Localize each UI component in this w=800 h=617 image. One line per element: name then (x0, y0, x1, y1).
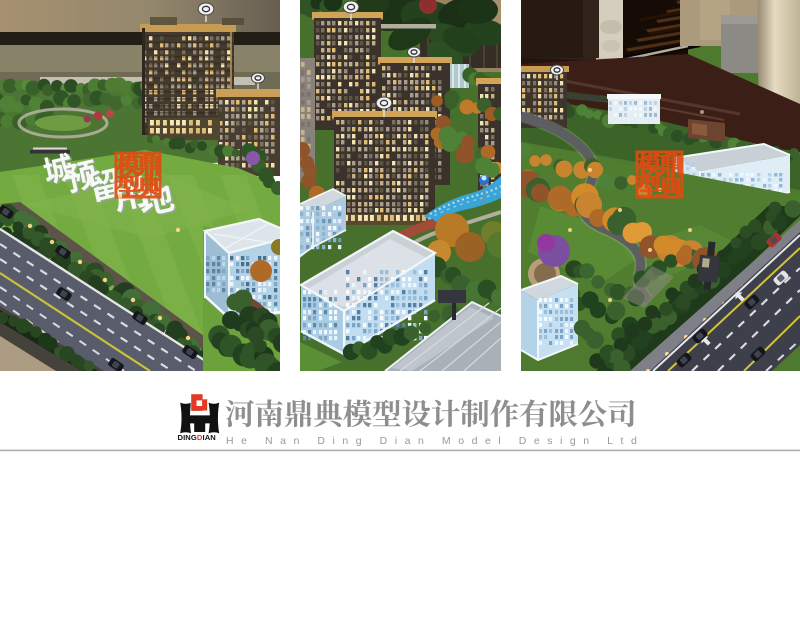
svg-text:He Nan Ding Dian Model Design: He Nan Ding Dian Model Design Ltd (226, 435, 644, 447)
svg-text:DINGDIAN: DINGDIAN (178, 433, 216, 442)
